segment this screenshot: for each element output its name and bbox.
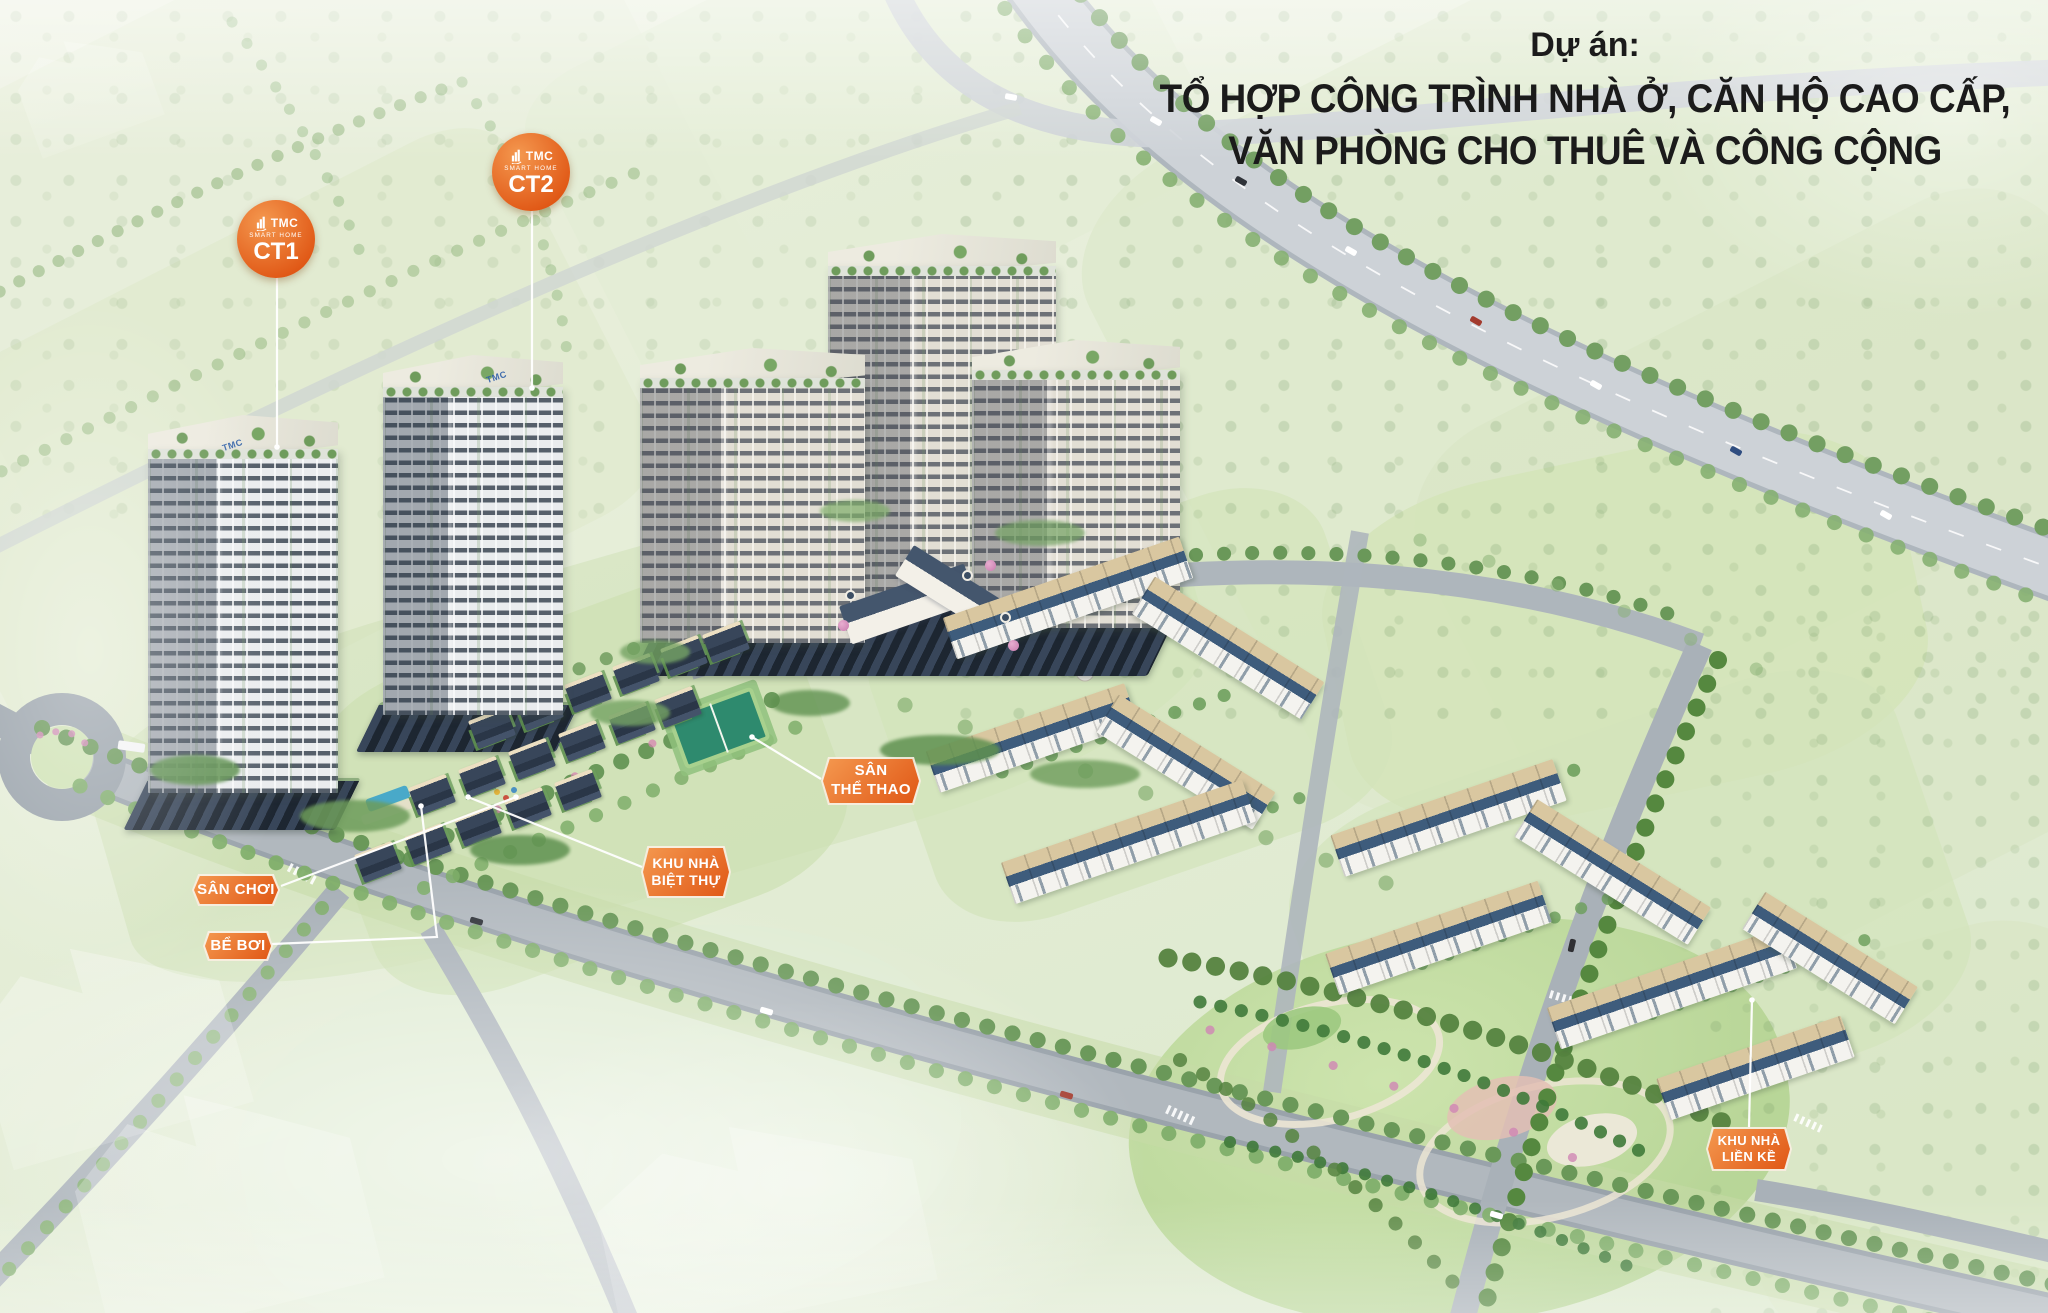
badge-label: CT1 (253, 240, 298, 264)
marker-ct1[interactable]: TMC SMART HOME CT1 (237, 200, 315, 278)
tag-be-boi[interactable]: BỂ BƠI (203, 931, 273, 961)
project-title-line1: TỔ HỢP CÔNG TRÌNH NHÀ Ở, CĂN HỘ CAO CẤP, (1148, 73, 2022, 125)
project-title-line2: VĂN PHÒNG CHO THUÊ VÀ CÔNG CỘNG (1148, 125, 2022, 177)
project-title: Dự án: TỔ HỢP CÔNG TRÌNH NHÀ Ở, CĂN HỘ C… (1110, 26, 2048, 177)
badge-brand: TMC (271, 216, 299, 230)
tag-label: SÂN CHƠI (197, 881, 275, 900)
tmc-logo-icon: TMC (509, 148, 554, 164)
marker-ct2[interactable]: TMC SMART HOME CT2 (492, 133, 570, 211)
tag-san-choi[interactable]: SÂN CHƠI (192, 874, 280, 906)
masterplan-render: TMC TMC TMC SMART HOME CT1 (0, 0, 2048, 1313)
tag-label: THỂ THAO (831, 781, 911, 800)
tag-label: SÂN (855, 762, 888, 781)
tmc-logo-icon: TMC (254, 215, 299, 231)
leader-line-nodes (274, 385, 1755, 1003)
badge-brand: TMC (526, 149, 554, 163)
tag-san-the-thao[interactable]: SÂN THỂ THAO (821, 757, 921, 805)
tag-label: BỂ BƠI (210, 937, 265, 956)
badge-label: CT2 (508, 173, 553, 197)
tag-label: KHU NHÀ (1718, 1133, 1781, 1149)
tag-label: BIỆT THỰ (651, 872, 720, 890)
tag-label: LIỀN KỀ (1722, 1149, 1776, 1165)
leader-lines (272, 211, 1752, 1127)
callout-lines-layer (0, 0, 2048, 1313)
project-title-prefix: Dự án: (1110, 26, 2048, 65)
tag-khu-nha-lien-ke[interactable]: KHU NHÀ LIỀN KỀ (1706, 1127, 1792, 1171)
tag-khu-nha-biet-thu[interactable]: KHU NHÀ BIỆT THỰ (641, 846, 731, 898)
tag-label: KHU NHÀ (652, 855, 719, 873)
